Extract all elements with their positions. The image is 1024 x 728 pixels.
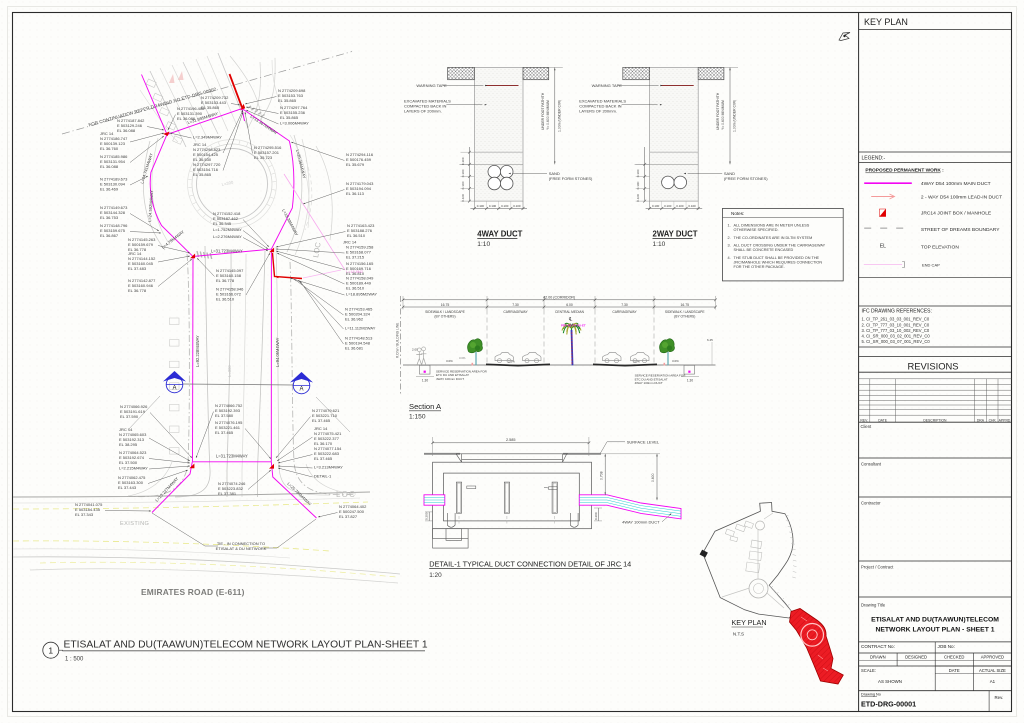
svg-text:7.30: 7.30 — [621, 303, 628, 307]
svg-text:ETISALAT & DU NETWORK: ETISALAT & DU NETWORK — [216, 546, 267, 551]
svg-text:END CAP: END CAP — [922, 262, 940, 267]
svg-text:7.30: 7.30 — [512, 303, 519, 307]
svg-text:THE CO-ORDINATES ARE IN DLTM S: THE CO-ORDINATES ARE IN DLTM SYSTEM — [734, 236, 813, 240]
svg-text:0.200: 0.200 — [594, 512, 598, 520]
svg-text:Consultant: Consultant — [861, 462, 882, 467]
svg-text:N.T.S: N.T.S — [733, 632, 744, 637]
svg-text:0.100: 0.100 — [636, 181, 640, 189]
svg-text:5. CI_SR_000_03_07_001_REV_C0: 5. CI_SR_000_03_07_001_REV_C0 — [862, 339, 931, 344]
svg-text:1 : 500: 1 : 500 — [65, 657, 84, 663]
svg-text:0.100: 0.100 — [688, 204, 696, 208]
svg-text:R.O.W / BUILDING LINE: R.O.W / BUILDING LINE — [395, 323, 399, 358]
svg-text:FOR THE OTHER PACKAGE.: FOR THE OTHER PACKAGE. — [734, 265, 785, 269]
svg-text:SCALE:: SCALE: — [861, 668, 876, 673]
svg-text:Y= 0.600 MINIMUM: Y= 0.600 MINIMUM — [546, 100, 550, 130]
svg-text:EL 37.827: EL 37.827 — [339, 514, 358, 519]
svg-text:EL 36.962: EL 36.962 — [345, 316, 364, 321]
svg-text:2WAY DUCT: 2WAY DUCT — [653, 230, 698, 239]
svg-text:EL 37.465: EL 37.465 — [312, 418, 331, 423]
svg-text:1:20: 1:20 — [429, 572, 442, 579]
svg-text:EL 36.469: EL 36.469 — [100, 186, 119, 191]
svg-text:3.: 3. — [728, 244, 731, 248]
svg-text:L=18.895M2WAY: L=18.895M2WAY — [346, 291, 377, 296]
svg-text:1.: 1. — [728, 224, 731, 228]
svg-text:3.0%: 3.0% — [446, 359, 453, 363]
svg-text:EXISTING: EXISTING — [120, 521, 149, 527]
svg-text:1.00m (UNDER C/W): 1.00m (UNDER C/W) — [557, 100, 561, 132]
svg-text:0.100: 0.100 — [501, 204, 509, 208]
svg-text:SHALL BE CONCRETE ENCASED: SHALL BE CONCRETE ENCASED — [734, 248, 794, 252]
svg-text:EL 37.465: EL 37.465 — [215, 430, 234, 435]
svg-text:EL 35.723: EL 35.723 — [254, 155, 273, 160]
svg-text:L=300: L=300 — [227, 365, 232, 377]
svg-text:UNDER FOOT PATH/TH: UNDER FOOT PATH/TH — [541, 92, 545, 130]
svg-text:OTHERWISE SPECIFIED.: OTHERWISE SPECIFIED. — [734, 228, 779, 232]
svg-text:EL 36.510: EL 36.510 — [346, 285, 365, 290]
svg-text:EL 37.343: EL 37.343 — [75, 512, 94, 517]
svg-text:ETD-DRG-00001: ETD-DRG-00001 — [861, 700, 916, 709]
svg-text:4.: 4. — [728, 256, 731, 260]
svg-text:(FREE FORM STONES): (FREE FORM STONES) — [549, 176, 593, 181]
svg-text:0.600: 0.600 — [651, 473, 655, 482]
svg-text:EL 35.865: EL 35.865 — [201, 105, 220, 110]
svg-text:6.00: 6.00 — [566, 303, 573, 307]
svg-text:1.30: 1.30 — [687, 379, 693, 383]
svg-text:LEGEND:-: LEGEND:- — [862, 156, 886, 162]
svg-text:CARRIAGEWAY: CARRIAGEWAY — [503, 310, 528, 314]
svg-text:A: A — [172, 386, 176, 392]
svg-text:WARNING TAPE: WARNING TAPE — [592, 83, 623, 88]
svg-text:EL 36.778: EL 36.778 — [216, 278, 235, 283]
svg-text:L=92.228M4WAY: L=92.228M4WAY — [195, 335, 200, 367]
svg-text:EL 36.086: EL 36.086 — [177, 116, 196, 121]
svg-text:EL 36.510: EL 36.510 — [216, 296, 235, 301]
svg-text:A1: A1 — [990, 679, 996, 684]
svg-text:DRAWN: DRAWN — [870, 655, 886, 660]
svg-text:2.585: 2.585 — [506, 438, 516, 442]
svg-text:CARRIAGEWAY: CARRIAGEWAY — [612, 310, 637, 314]
svg-text:1:150: 1:150 — [409, 414, 426, 421]
svg-text:CHK: CHK — [989, 418, 997, 422]
svg-text:EL 37.381: EL 37.381 — [218, 491, 237, 496]
svg-text:0.100: 0.100 — [461, 157, 465, 165]
svg-text:L=31.723M4WAY: L=31.723M4WAY — [211, 249, 243, 254]
svg-text:IFC DRAWING REFERENCES:: IFC DRAWING REFERENCES: — [862, 309, 932, 315]
svg-text:16.75: 16.75 — [681, 303, 690, 307]
svg-text:0.100: 0.100 — [664, 204, 672, 208]
svg-text:ALL DIMENSIONS ARE IN METER UN: ALL DIMENSIONS ARE IN METER UNLESS — [734, 224, 810, 228]
svg-text:EL: EL — [880, 244, 886, 250]
svg-text:REVISIONS: REVISIONS — [907, 361, 958, 372]
svg-text:PRC-N2774-DU-ET: PRC-N2774-DU-ET — [561, 323, 586, 327]
svg-text:DESIGNED: DESIGNED — [905, 655, 927, 660]
svg-text:1.30: 1.30 — [422, 379, 428, 383]
svg-text:1:10: 1:10 — [477, 241, 490, 248]
svg-text:EL 36.753: EL 36.753 — [100, 215, 119, 220]
svg-text:L=2.276M4WAY: L=2.276M4WAY — [213, 234, 242, 239]
svg-text:ETISALAT AND DU(TAAWUN)TELECOM: ETISALAT AND DU(TAAWUN)TELECOM — [871, 617, 999, 624]
svg-text:L=94.05M4WAY: L=94.05M4WAY — [275, 337, 280, 367]
svg-text:STREET OF DREAMS BOUNDARY: STREET OF DREAMS BOUNDARY — [921, 227, 1000, 233]
svg-text:EL 36.088: EL 36.088 — [100, 164, 119, 169]
svg-text:0.200: 0.200 — [424, 512, 428, 520]
svg-text:16.75: 16.75 — [441, 303, 450, 307]
svg-text:2.: 2. — [728, 236, 731, 240]
svg-text:3.0%: 3.0% — [672, 359, 679, 363]
svg-text:4. CI_SR_000_03_02_001_REV_C0: 4. CI_SR_000_03_02_001_REV_C0 — [862, 334, 931, 339]
svg-text:DETAIL-1 TYPICAL DUCT CONNECTI: DETAIL-1 TYPICAL DUCT CONNECTION DETAIL … — [429, 560, 631, 569]
svg-text:EL 37.500: EL 37.500 — [119, 460, 138, 465]
svg-text:Rev.: Rev. — [995, 695, 1004, 700]
svg-text:EL 37.215: EL 37.215 — [346, 254, 365, 259]
svg-text:LOC: LOC — [336, 490, 356, 499]
svg-text:4WAY 100mm DUCT: 4WAY 100mm DUCT — [622, 520, 660, 525]
svg-text:EL 36.681: EL 36.681 — [345, 345, 364, 350]
svg-text:0.100: 0.100 — [461, 169, 465, 177]
svg-text:L=1.752M4WAY: L=1.752M4WAY — [213, 227, 242, 232]
svg-text:EL 37.590: EL 37.590 — [120, 414, 139, 419]
svg-text:DATE: DATE — [878, 418, 888, 422]
svg-text:THE STUB DUCT SHALL BE PROVIDE: THE STUB DUCT SHALL BE PROVIDED ON THE — [734, 256, 820, 260]
svg-text:EL 37.580: EL 37.580 — [215, 413, 234, 418]
svg-text:3. CI_TP_777_03_10_002_REV_C0: 3. CI_TP_777_03_10_002_REV_C0 — [862, 328, 930, 333]
svg-text:APPROVED: APPROVED — [981, 655, 1004, 660]
svg-text:0.100: 0.100 — [636, 194, 640, 202]
svg-text:EL 38.295: EL 38.295 — [119, 442, 138, 447]
svg-text:L=11.112M2WAY: L=11.112M2WAY — [345, 325, 376, 330]
svg-text:0.100: 0.100 — [636, 169, 640, 177]
svg-text:1. CI_TP_261_03_03_001_REV_C0: 1. CI_TP_261_03_03_001_REV_C0 — [862, 317, 930, 322]
svg-text:KEY PLAN: KEY PLAN — [864, 17, 908, 27]
svg-text:KEY PLAN: KEY PLAN — [732, 618, 767, 627]
svg-text:L=3.213M4WAY: L=3.213M4WAY — [314, 464, 343, 469]
svg-text:AS SHOWN: AS SHOWN — [878, 679, 902, 684]
svg-text:4WAY D54 100mm MAIN DUCT: 4WAY D54 100mm MAIN DUCT — [921, 181, 991, 187]
svg-text:ACTUAL SIZE: ACTUAL SIZE — [979, 668, 1006, 673]
svg-text:L=2.349M4WAY: L=2.349M4WAY — [193, 134, 222, 139]
svg-text:L=3.006M4WAY: L=3.006M4WAY — [280, 120, 309, 125]
svg-text:CONTRACT No:: CONTRACT No: — [861, 644, 895, 649]
svg-text:6.45: 6.45 — [707, 338, 713, 342]
svg-text:JRC14 JOINT BOX / MANHOLE: JRC14 JOINT BOX / MANHOLE — [921, 211, 992, 217]
svg-text:1.00m (UNDER C/W): 1.00m (UNDER C/W) — [733, 100, 737, 132]
svg-text:Project / Contract: Project / Contract — [861, 565, 894, 570]
svg-text:EL 36.760: EL 36.760 — [100, 146, 119, 151]
svg-text:ETISALAT AND DU(TAAWUN)TELECOM: ETISALAT AND DU(TAAWUN)TELECOM NETWORK L… — [64, 640, 428, 651]
svg-text:SURFACE LEVEL: SURFACE LEVEL — [627, 439, 660, 444]
svg-text:EL 35.679: EL 35.679 — [346, 162, 365, 167]
svg-text:TOP ELEVATION: TOP ELEVATION — [921, 245, 959, 251]
svg-text:NETWORK LAYOUT PLAN - SHEET 1: NETWORK LAYOUT PLAN - SHEET 1 — [875, 627, 994, 634]
svg-text:DETAIL-1: DETAIL-1 — [314, 473, 332, 478]
svg-text:0.100: 0.100 — [461, 181, 465, 189]
svg-text:42.00 (CORRIDOR): 42.00 (CORRIDOR) — [543, 295, 575, 299]
svg-text:EL 35.865: EL 35.865 — [193, 172, 212, 177]
svg-text:Client: Client — [861, 424, 873, 429]
svg-text:EL 35.865: EL 35.865 — [280, 115, 299, 120]
svg-text:2. CI_TP_777_03_10_001_REV_C0: 2. CI_TP_777_03_10_001_REV_C0 — [862, 322, 930, 327]
svg-text:EL 37.465: EL 37.465 — [314, 456, 333, 461]
svg-text:3.0%: 3.0% — [459, 356, 466, 360]
svg-text:L=2.215M4WAY: L=2.215M4WAY — [119, 465, 148, 470]
svg-text:A: A — [299, 387, 303, 393]
svg-text:JOB No:: JOB No: — [938, 644, 955, 649]
svg-text:EL 36.867: EL 36.867 — [100, 233, 119, 238]
svg-text:EL 36.510: EL 36.510 — [347, 233, 366, 238]
svg-text:DATE: DATE — [949, 668, 960, 673]
svg-text:LAYERS OF 200mm.: LAYERS OF 200mm. — [579, 109, 617, 114]
svg-text:EL 36.088: EL 36.088 — [117, 128, 136, 133]
svg-text:0.100: 0.100 — [676, 204, 684, 208]
svg-text:0.708: 0.708 — [599, 471, 603, 480]
svg-text:0.100: 0.100 — [461, 194, 465, 202]
svg-text:LAYERS OF 200mm.: LAYERS OF 200mm. — [404, 109, 442, 114]
svg-text:REV.: REV. — [860, 418, 868, 422]
svg-text:(BY OTHERS): (BY OTHERS) — [674, 314, 695, 318]
svg-text:1:10: 1:10 — [653, 241, 666, 248]
svg-text:0.100: 0.100 — [477, 204, 485, 208]
svg-text:EL 36.778: EL 36.778 — [128, 288, 147, 293]
svg-text:Contractor: Contractor — [861, 501, 881, 506]
svg-text:Notes:: Notes: — [731, 211, 744, 216]
svg-text:0.100: 0.100 — [489, 204, 497, 208]
svg-text:(BY OTHERS): (BY OTHERS) — [434, 314, 455, 318]
svg-text:4WAY 100mm DUCT: 4WAY 100mm DUCT — [635, 381, 663, 385]
svg-text:APPRD: APPRD — [999, 418, 1011, 422]
svg-text:EL 36.345: EL 36.345 — [213, 221, 232, 226]
svg-text:Section A: Section A — [409, 402, 442, 411]
svg-text:CENTRAL MEDIAN: CENTRAL MEDIAN — [555, 310, 585, 314]
svg-text:2 - WAY D54 100mm LEAD-IN DUC: 2 - WAY D54 100mm LEAD-IN DUCT — [921, 195, 1002, 201]
svg-text:0.100: 0.100 — [652, 204, 660, 208]
svg-text:1: 1 — [48, 646, 53, 656]
svg-text:WARNING TAPE: WARNING TAPE — [416, 83, 447, 88]
svg-text:L=31.723M4WAY: L=31.723M4WAY — [216, 454, 248, 459]
svg-text:JRC/MANHOLE WHICH REQUIRES CON: JRC/MANHOLE WHICH REQUIRES CONNECTION — [734, 260, 823, 264]
svg-text:EL 37.443: EL 37.443 — [118, 485, 137, 490]
svg-text:Drawing No: Drawing No — [861, 693, 881, 697]
svg-text:UNDER FOOT PATH/TH: UNDER FOOT PATH/TH — [716, 92, 720, 130]
svg-text:4WAY 100mm DUCT: 4WAY 100mm DUCT — [436, 377, 464, 381]
svg-text:DESCRIPTION: DESCRIPTION — [923, 418, 947, 422]
svg-text:4WAY DUCT: 4WAY DUCT — [477, 230, 522, 239]
svg-text:Drawing Title: Drawing Title — [861, 603, 886, 608]
svg-text:EL 35.865: EL 35.865 — [278, 98, 297, 103]
svg-text:EMIRATES ROAD (E-611): EMIRATES ROAD (E-611) — [141, 587, 245, 597]
svg-text:(FREE FORM STONES): (FREE FORM STONES) — [724, 176, 768, 181]
svg-text:0.100: 0.100 — [513, 204, 521, 208]
svg-text:EL 36.113: EL 36.113 — [346, 191, 365, 196]
svg-text:ALL DUCT CROSSING UNDER THE CA: ALL DUCT CROSSING UNDER THE CARRIAGEWAY — [734, 244, 826, 248]
svg-text:EL 37.483: EL 37.483 — [128, 266, 147, 271]
svg-text:CHECKED: CHECKED — [944, 655, 964, 660]
svg-text:Y= 0.600 MINIMUM: Y= 0.600 MINIMUM — [721, 100, 725, 130]
svg-text:PROPOSED PERMANENT WORK :: PROPOSED PERMANENT WORK : — [865, 167, 944, 173]
svg-text:DRA: DRA — [977, 418, 985, 422]
